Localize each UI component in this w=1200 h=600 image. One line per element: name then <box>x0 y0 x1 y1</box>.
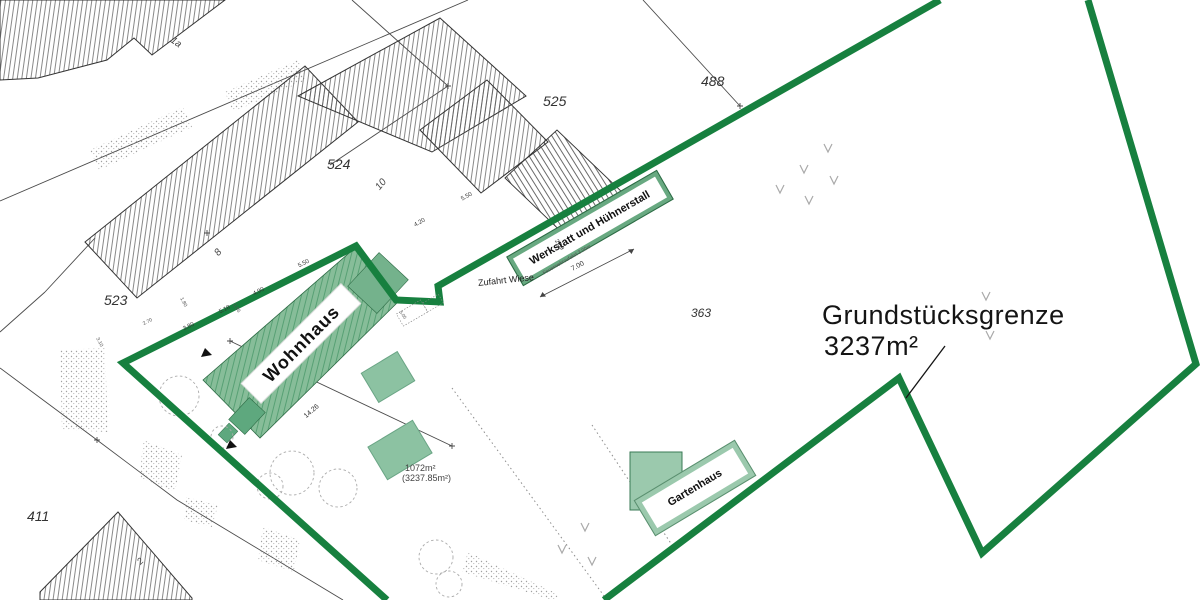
parcel-number-523: 523 <box>104 293 127 307</box>
title-area-value: 3237m² <box>824 333 919 360</box>
parcel-number-525: 525 <box>543 94 566 108</box>
title-grundstuecksgrenze: Grundstücksgrenze <box>822 302 1065 329</box>
area-inner-note: 1072m² <box>405 464 436 473</box>
building-411 <box>40 512 192 600</box>
area-total-note: (3237.85m²) <box>402 474 451 483</box>
garden-sheds <box>361 352 432 480</box>
parcel-number-411: 411 <box>27 509 49 523</box>
site-plan-canvas: Grundstücksgrenze 3237m² 523 524 525 488… <box>0 0 1200 600</box>
parcel-number-363: 363 <box>691 307 711 319</box>
parcel-number-524: 524 <box>327 157 350 171</box>
parcel-number-488: 488 <box>701 74 724 88</box>
building-1a <box>0 0 225 80</box>
